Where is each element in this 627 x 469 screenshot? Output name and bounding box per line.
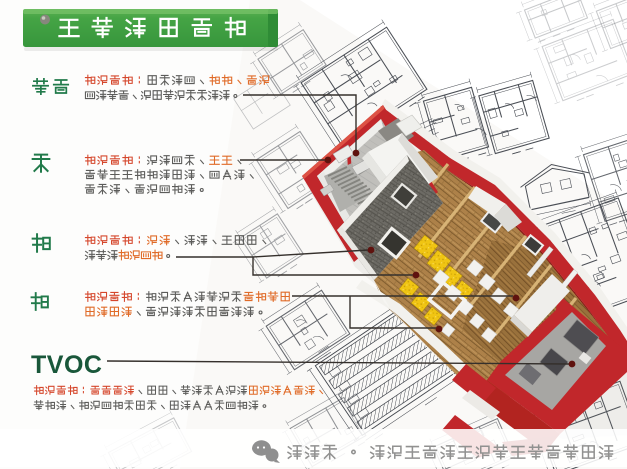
svg-text:TVOC: TVOC <box>31 351 102 379</box>
